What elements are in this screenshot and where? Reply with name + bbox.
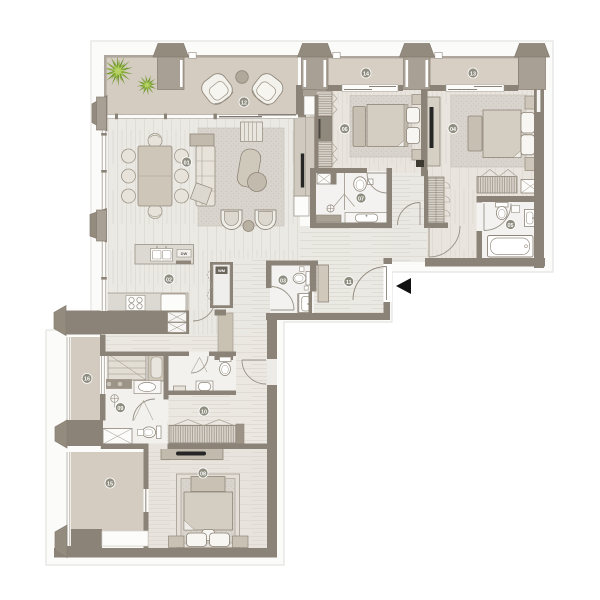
svg-text:04: 04 <box>450 127 456 133</box>
svg-text:09: 09 <box>117 406 123 412</box>
svg-text:16: 16 <box>84 377 90 383</box>
svg-text:03: 03 <box>280 278 286 284</box>
svg-text:11: 11 <box>346 280 352 286</box>
svg-text:WM: WM <box>218 268 226 273</box>
svg-text:06: 06 <box>342 127 348 133</box>
svg-text:02: 02 <box>166 277 172 283</box>
svg-text:13: 13 <box>470 71 476 77</box>
svg-text:14: 14 <box>363 71 369 77</box>
svg-text:15: 15 <box>107 481 113 487</box>
svg-text:01: 01 <box>184 160 190 166</box>
svg-text:DW: DW <box>181 251 188 256</box>
svg-text:08: 08 <box>200 471 206 477</box>
svg-text:12: 12 <box>241 100 247 106</box>
svg-text:07: 07 <box>358 196 364 202</box>
svg-text:10: 10 <box>201 409 207 415</box>
svg-text:05: 05 <box>508 223 514 229</box>
